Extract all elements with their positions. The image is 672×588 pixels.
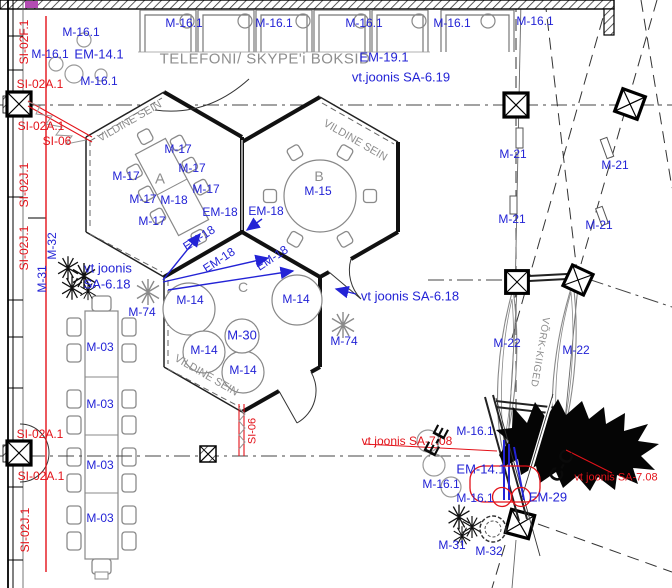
room-letter: A (155, 172, 165, 187)
swing-label: M-22 (562, 344, 589, 356)
floor-plan-drawing (0, 0, 672, 588)
room-letter: C (238, 280, 248, 294)
furniture-label: M-03 (86, 459, 113, 471)
swing-label: M-22 (493, 337, 520, 349)
annotation-label: EM-29 (529, 491, 567, 504)
wall-code-label: SI-02A.1 (17, 78, 64, 90)
wall-code-label: SI-02J.1 (18, 226, 30, 271)
annotation-label: M-16.1 (62, 26, 99, 38)
fixture-label: M-21 (498, 213, 525, 225)
furniture-label: M-14 (190, 344, 217, 356)
booth-label: M-16.1 (165, 17, 202, 29)
plant-label: M-74 (128, 306, 155, 318)
annotation-label: M-16.1 (422, 478, 459, 490)
annotation-label: M-16.1 (31, 48, 68, 60)
annotation-label: EM-14.1 (74, 48, 123, 61)
booth-label: M-16.1 (345, 17, 382, 29)
fixture-label: M-21 (499, 148, 526, 160)
wall-code-label: SI-02A.1 (17, 428, 64, 440)
purple-marker (25, 1, 38, 8)
wall-code-label: SI-06 (43, 135, 72, 147)
reference-note: SA-6.18 (84, 278, 131, 291)
plant-label: M-31 (438, 539, 465, 551)
booth-label: M-16.1 (255, 17, 292, 29)
fixture-label: M-21 (601, 159, 628, 171)
furniture-label: M-17 (112, 170, 139, 182)
long-table-group (67, 296, 136, 579)
booth-label: M-16.1 (433, 17, 470, 29)
furniture-label: M-17 (129, 193, 156, 205)
annotation-label: EM-19.1 (359, 51, 408, 64)
annotation-label: M-16.1 (456, 425, 493, 437)
annotation-label: M-16.1 (80, 75, 117, 87)
furniture-label: M-15 (304, 185, 331, 197)
furniture-label: M-03 (86, 512, 113, 524)
annotation-label: EM-18 (248, 205, 283, 217)
reference-note: vt joonis SA-7.08 (574, 473, 657, 484)
plant-label: M-32 (475, 545, 502, 557)
room-letter: B (314, 169, 323, 183)
furniture-label: M-17 (192, 183, 219, 195)
furniture-label: M-14 (176, 294, 203, 306)
furniture-label: M-18 (160, 194, 187, 206)
furniture-label: M-03 (86, 398, 113, 410)
annotation-label: EM-18 (202, 206, 237, 218)
plant-label: M-74 (330, 335, 357, 347)
zone-title: TELEFONI/ SKYPE'i BOKSID (160, 52, 371, 67)
furniture-label: M-31 (36, 265, 48, 292)
reference-note: vt joonis (84, 262, 132, 275)
reference-note: vt.joonis SA-6.19 (352, 71, 450, 84)
wall-code-label: SI-02F.1 (18, 20, 30, 65)
furniture-label: M-14 (229, 364, 256, 376)
wall-code-label: SI-02A.1 (18, 120, 65, 132)
reference-note: vt joonis SA-6.18 (361, 290, 459, 303)
furniture-label: M-14 (282, 293, 309, 305)
furniture-label: M-17 (178, 162, 205, 174)
furniture-label: M-17 (138, 215, 165, 227)
furniture-label: M-32 (46, 232, 58, 259)
booth-label: M-16.1 (516, 15, 553, 27)
annotation-label: EM-14.1 (456, 463, 505, 476)
plant-pot (480, 516, 506, 542)
wall-code-label: SI-02J.1 (19, 508, 31, 553)
furniture-label: M-17 (164, 143, 191, 155)
wall-code-label: SI-02A.1 (18, 470, 65, 482)
furniture-label: M-30 (227, 329, 257, 342)
annotation-label: M-16.1 (456, 492, 493, 504)
floor-plan-canvas: M-16.1 M-16.1 M-16.1 M-16.1 M-16.1 TELEF… (0, 0, 672, 588)
wall-code-label: SI-06 (248, 418, 259, 444)
fixture-label: M-21 (585, 219, 612, 231)
floor-box-marker (200, 446, 216, 462)
wall-code-label: SI-02J.1 (18, 163, 30, 208)
furniture-label: M-03 (86, 341, 113, 353)
